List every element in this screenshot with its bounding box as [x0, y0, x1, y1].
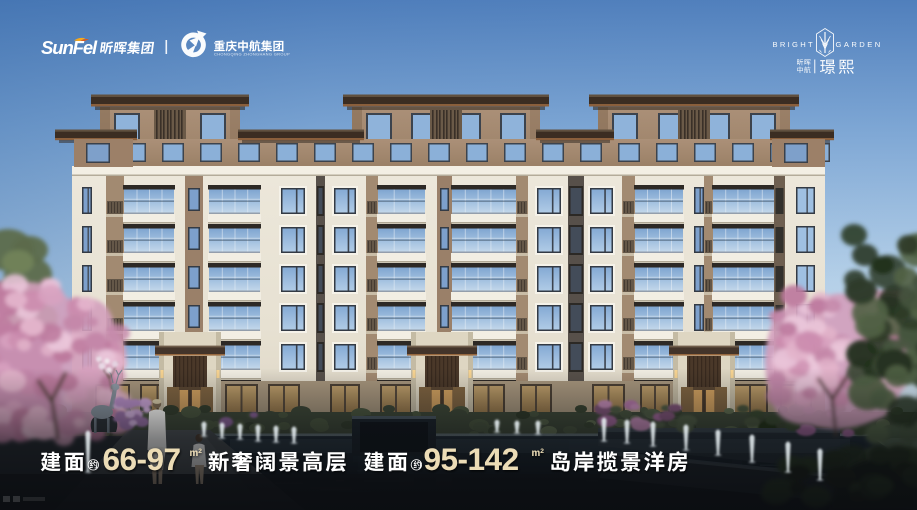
svg-text:66-97: 66-97 [103, 441, 181, 477]
svg-text:BRIGHT: BRIGHT [773, 40, 816, 49]
svg-text:SunFel: SunFel [41, 37, 98, 58]
svg-text:95-142: 95-142 [424, 441, 519, 477]
svg-text:CHONGQING ZHONGHANG GROUP: CHONGQING ZHONGHANG GROUP [214, 52, 290, 57]
svg-text:GARDEN: GARDEN [836, 40, 883, 49]
